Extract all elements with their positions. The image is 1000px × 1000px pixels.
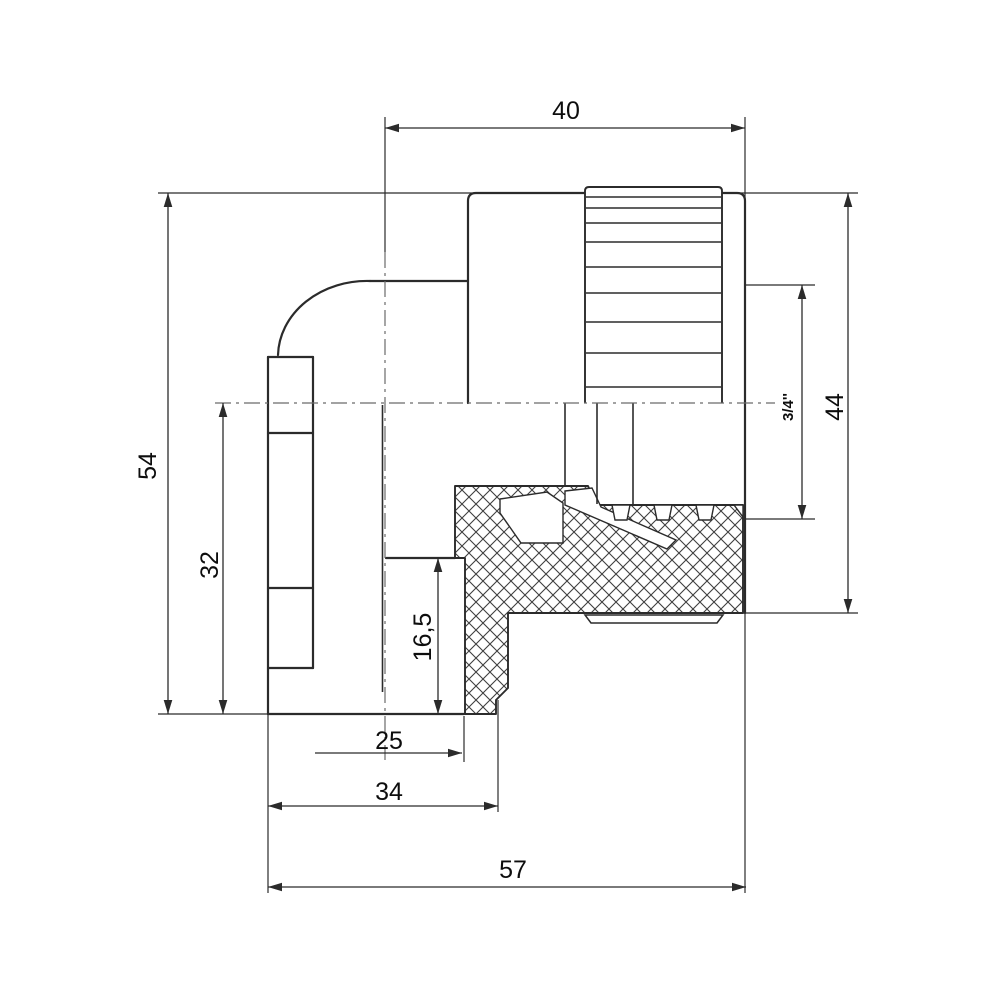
dimension-34: 34 (268, 778, 498, 810)
body-front-face (468, 193, 585, 403)
dim-32-label: 32 (196, 551, 224, 579)
dim-thread-label: 3/4'' (780, 393, 797, 421)
section-hatch (455, 403, 743, 714)
dim-40-label: 40 (552, 97, 580, 125)
dim-34-label: 34 (375, 778, 403, 806)
dimension-25: 25 (315, 727, 462, 757)
dimension-44: 44 (821, 193, 852, 613)
dimension-three-quarter-inch: 3/4'' (780, 285, 806, 519)
insert-bottom-edge (585, 615, 723, 623)
dimension-16-5: 16,5 (409, 558, 442, 714)
thread-groove (654, 505, 672, 520)
elbow-bend-arc (278, 281, 370, 355)
dim-16-5-label: 16,5 (409, 613, 437, 662)
dimension-57: 57 (268, 856, 746, 891)
dimension-40: 40 (385, 97, 745, 132)
dim-44-label: 44 (821, 393, 849, 421)
technical-drawing-page: 40 54 32 44 3/4'' 16,5 25 (0, 0, 1000, 1000)
thread-groove (696, 505, 714, 520)
dim-57-label: 57 (499, 856, 527, 884)
technical-drawing-canvas: 40 54 32 44 3/4'' 16,5 25 (0, 0, 1000, 1000)
thread-groove (612, 505, 630, 520)
knurled-insert (585, 187, 722, 403)
dim-25-label: 25 (375, 727, 403, 755)
dimension-32: 32 (196, 403, 227, 714)
dimension-54: 54 (134, 193, 172, 714)
dim-54-label: 54 (134, 452, 162, 480)
